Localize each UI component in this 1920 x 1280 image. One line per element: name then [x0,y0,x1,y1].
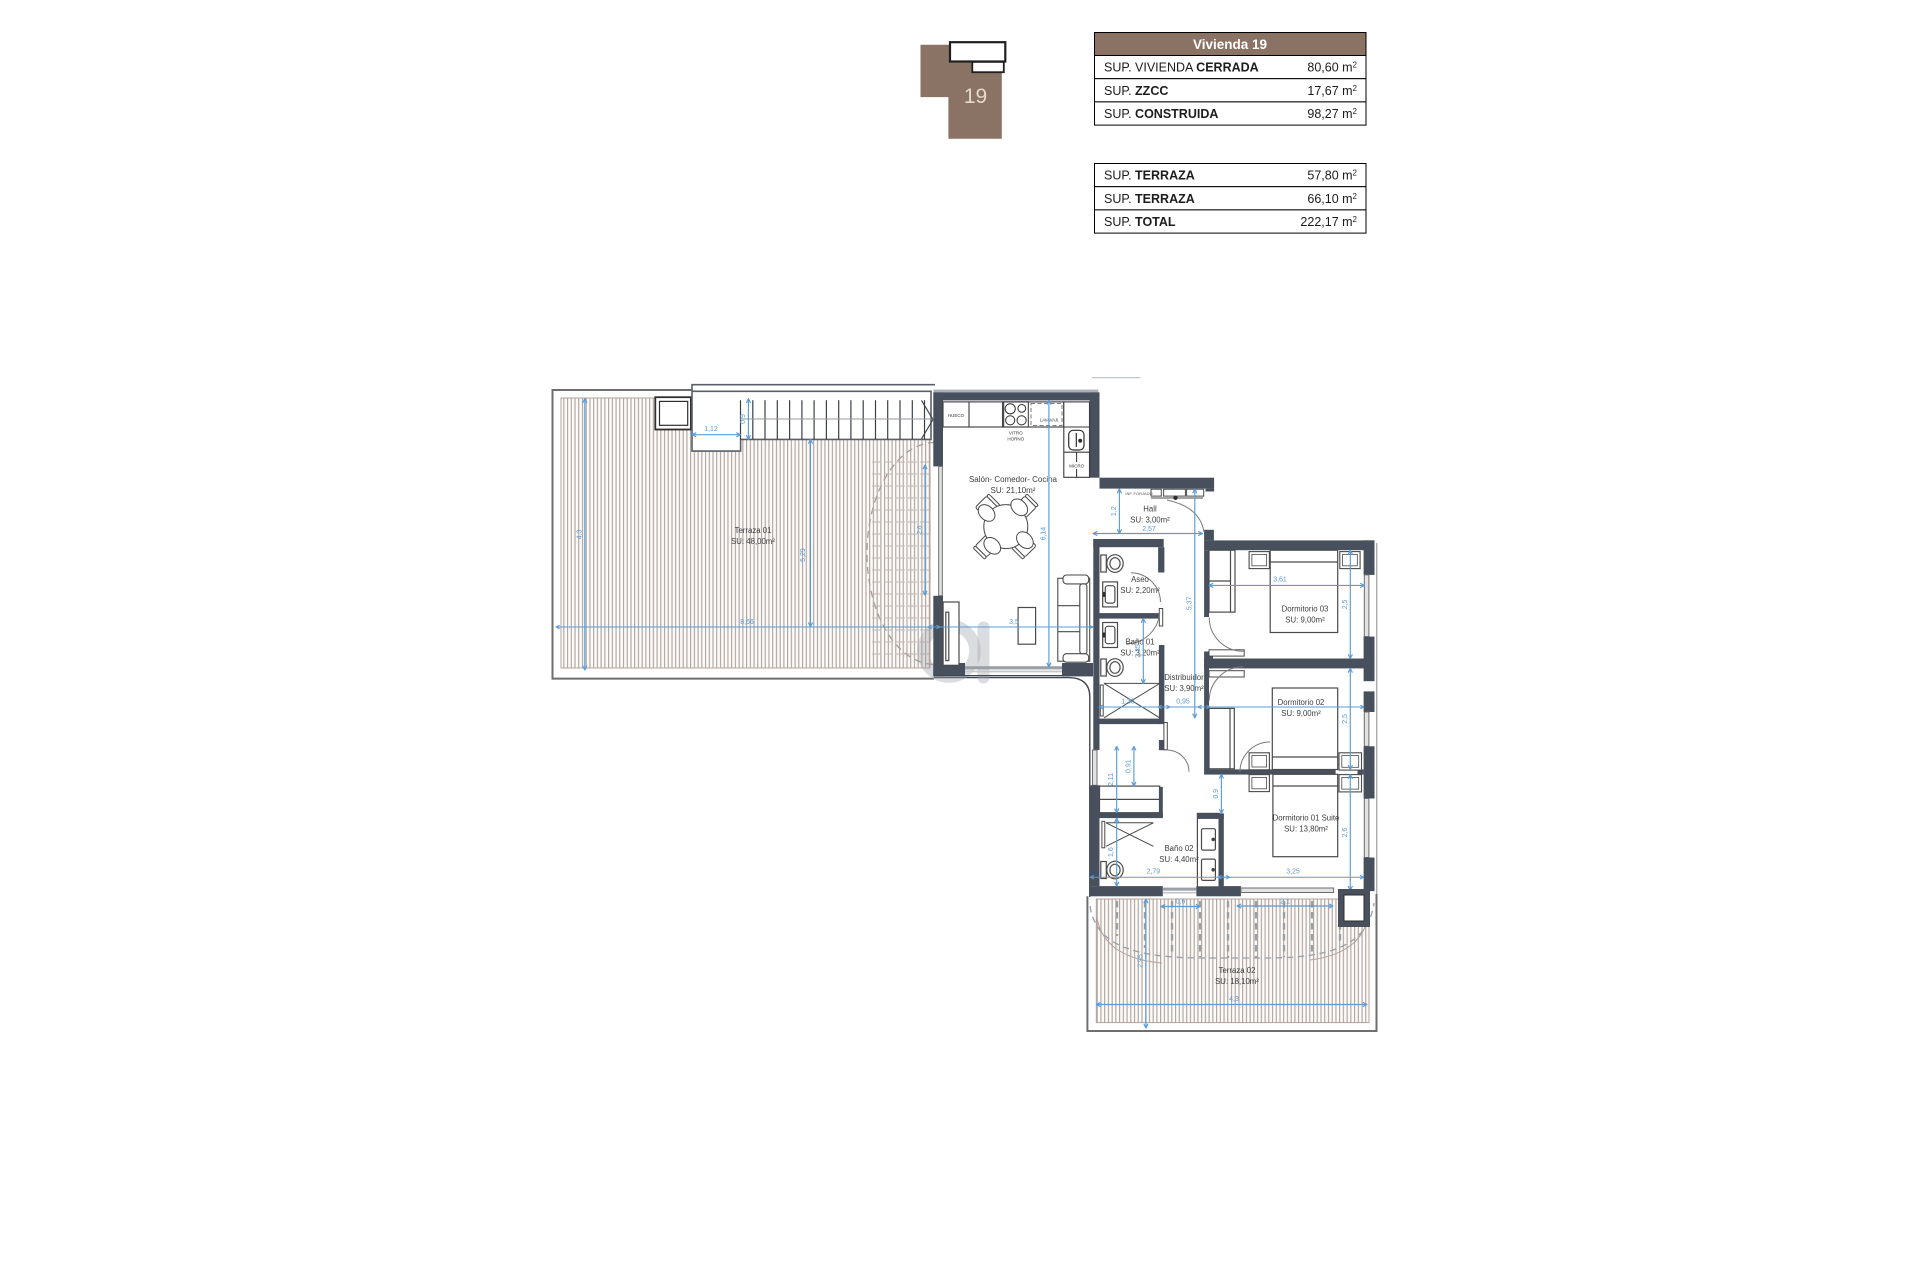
svg-text:222,17 m2: 222,17 m2 [1300,215,1357,229]
svg-text:2,95: 2,95 [1137,954,1144,968]
svg-text:LAVAVAJI.: LAVAVAJI. [1040,418,1059,423]
svg-text:SUP. ZZCC: SUP. ZZCC [1104,84,1168,98]
svg-text:VITRO: VITRO [1009,431,1023,436]
svg-text:Dormitorio 01 Suite: Dormitorio 01 Suite [1273,814,1340,823]
svg-text:1,12: 1,12 [704,426,718,433]
svg-text:2,5: 2,5 [1342,714,1349,724]
svg-text:SUP. TERRAZA: SUP. TERRAZA [1104,169,1195,183]
svg-text:2,6: 2,6 [917,525,924,534]
svg-text:INF. FORJADO: INF. FORJADO [1125,491,1152,496]
svg-text:6,14: 6,14 [1040,527,1047,541]
svg-text:80,60 m2: 80,60 m2 [1307,61,1357,75]
svg-text:Baño 02: Baño 02 [1164,844,1193,853]
svg-text:3,5: 3,5 [1009,619,1019,626]
svg-text:0,9: 0,9 [740,414,747,424]
svg-text:0,91: 0,91 [1125,759,1132,773]
svg-text:1,38: 1,38 [1121,699,1135,706]
svg-text:Terraza 01: Terraza 01 [735,526,772,535]
svg-text:8,66: 8,66 [740,619,754,626]
svg-text:HORNO: HORNO [1007,437,1024,442]
svg-text:Salón- Comedor- Cocina: Salón- Comedor- Cocina [969,475,1058,484]
svg-text:SU: 48,00m²: SU: 48,00m² [731,537,775,546]
svg-text:5,29: 5,29 [800,548,807,562]
svg-text:SU: 9,00m²: SU: 9,00m² [1285,615,1325,624]
svg-text:66,10 m2: 66,10 m2 [1307,192,1357,206]
svg-text:SUP. VIVIENDA CERRADA: SUP. VIVIENDA CERRADA [1104,61,1259,75]
svg-text:0,95: 0,95 [1176,699,1190,706]
svg-text:SUP. CONSTRUIDA: SUP. CONSTRUIDA [1104,107,1218,121]
svg-text:SUP. TOTAL: SUP. TOTAL [1104,215,1176,229]
svg-text:SUP. TERRAZA: SUP. TERRAZA [1104,192,1195,206]
svg-text:SU: 18,10m²: SU: 18,10m² [1215,977,1259,986]
svg-text:57,80 m2: 57,80 m2 [1307,169,1357,183]
svg-text:19: 19 [964,85,987,108]
svg-text:0,6: 0,6 [1176,899,1186,906]
svg-text:3,25: 3,25 [1286,869,1300,876]
svg-text:2,6: 2,6 [1342,828,1349,838]
svg-text:Hall: Hall [1143,505,1157,514]
svg-text:SU: 21,10m²: SU: 21,10m² [991,486,1036,495]
svg-text:17,67 m2: 17,67 m2 [1307,84,1357,98]
svg-text:2,5: 2,5 [1342,599,1349,609]
svg-text:SU: 9,00m²: SU: 9,00m² [1281,709,1321,718]
svg-text:HUECO: HUECO [948,413,965,418]
svg-text:Terraza 02: Terraza 02 [1219,966,1256,975]
svg-text:2,57: 2,57 [1142,526,1156,533]
svg-text:1,2: 1,2 [1111,506,1118,516]
svg-text:Vivienda 19: Vivienda 19 [1193,37,1267,52]
svg-text:SU: 2,20m²: SU: 2,20m² [1120,586,1160,595]
svg-text:Dormitorio 03: Dormitorio 03 [1282,605,1329,614]
svg-text:Aseo: Aseo [1131,575,1149,584]
svg-text:4,3: 4,3 [1229,996,1239,1003]
svg-text:0,9: 0,9 [1213,789,1220,799]
svg-text:98,27 m2: 98,27 m2 [1307,107,1357,121]
svg-text:SU: 3,00m²: SU: 3,00m² [1130,515,1170,524]
svg-text:2,79: 2,79 [1147,869,1161,876]
svg-text:2,35: 2,35 [1135,644,1142,658]
svg-text:5,37: 5,37 [1186,596,1193,610]
svg-text:2,11: 2,11 [1108,773,1115,786]
svg-text:Distribuidor: Distribuidor [1164,673,1204,682]
svg-text:1,6: 1,6 [1108,847,1115,857]
svg-text:MICRO: MICRO [1069,464,1084,469]
svg-text:3,61: 3,61 [1273,577,1287,584]
svg-text:Dormitorio 02: Dormitorio 02 [1278,698,1325,707]
svg-text:SU: 3,90m²: SU: 3,90m² [1164,684,1204,693]
svg-text:2,1: 2,1 [1280,899,1290,906]
svg-text:SU: 13,80m²: SU: 13,80m² [1284,824,1328,833]
svg-text:SU: 4,40m²: SU: 4,40m² [1159,855,1199,864]
svg-text:4,3: 4,3 [576,529,583,539]
